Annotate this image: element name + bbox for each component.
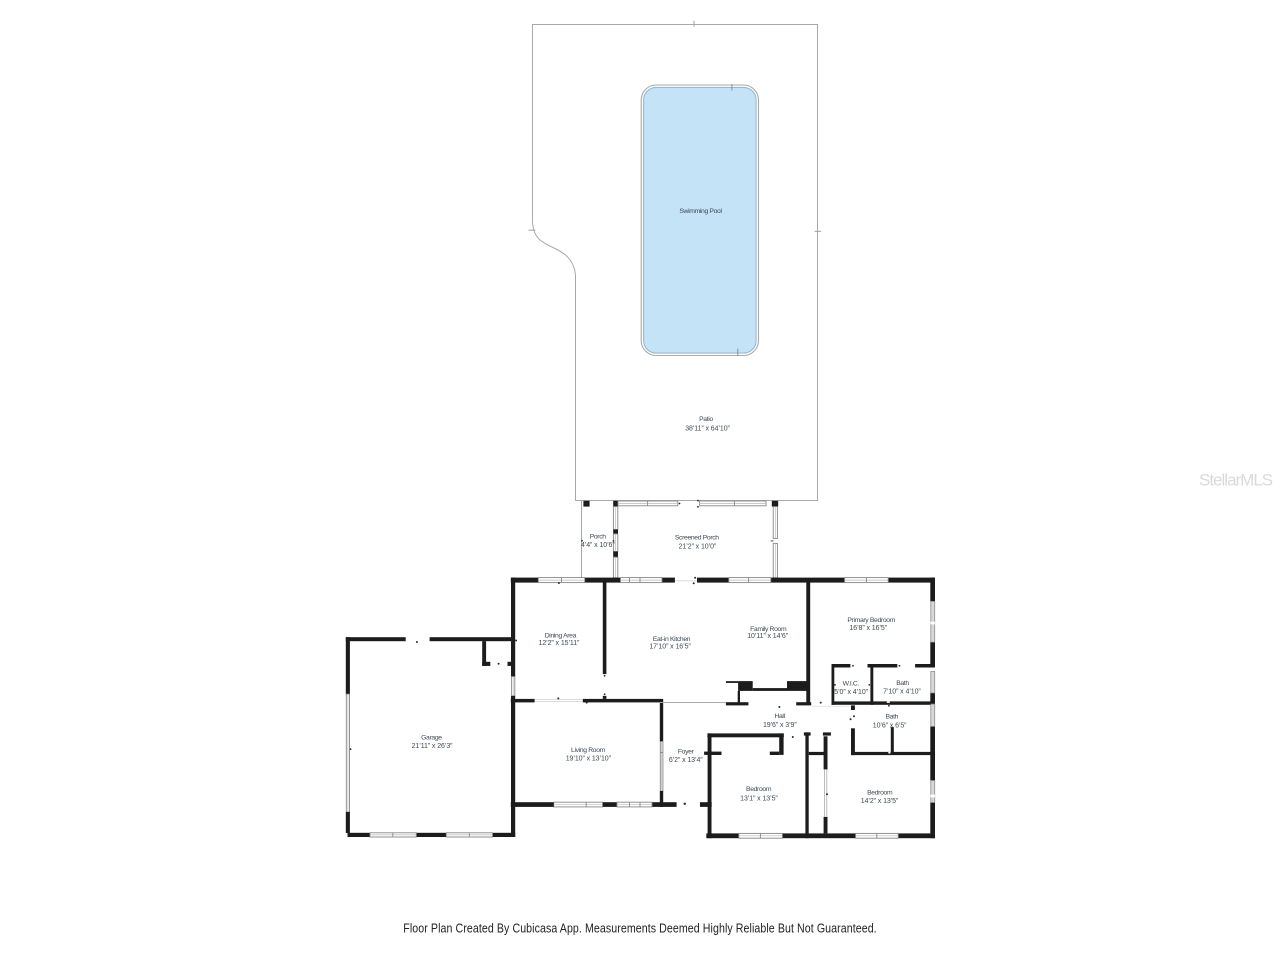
svg-text:16’8” x 16’5”: 16’8” x 16’5” xyxy=(849,625,887,632)
svg-text:4’4” x 10’6”: 4’4” x 10’6” xyxy=(581,542,615,549)
svg-text:Dining Area: Dining Area xyxy=(545,632,577,639)
svg-text:Eat-in Kitchen: Eat-in Kitchen xyxy=(653,636,691,643)
svg-text:19’6” x 3’9”: 19’6” x 3’9” xyxy=(763,722,797,729)
svg-text:10’6” x 6’5”: 10’6” x 6’5” xyxy=(873,722,907,729)
svg-text:Floor Plan Created By Cubicasa: Floor Plan Created By Cubicasa App. Meas… xyxy=(403,920,876,935)
svg-text:17’10” x 16’5”: 17’10” x 16’5” xyxy=(649,644,691,651)
svg-text:6’2” x 13’4”: 6’2” x 13’4” xyxy=(669,757,703,764)
svg-text:W.I.C.: W.I.C. xyxy=(843,681,860,688)
svg-text:7’10” x 4’10”: 7’10” x 4’10” xyxy=(883,689,921,696)
svg-text:14’2” x 13’5”: 14’2” x 13’5” xyxy=(861,798,899,805)
svg-text:Living Room: Living Room xyxy=(571,747,606,754)
svg-text:19’10” x 13’10”: 19’10” x 13’10” xyxy=(566,755,612,762)
svg-text:38’11” x 64’10”: 38’11” x 64’10” xyxy=(685,426,730,433)
svg-text:Bedroom: Bedroom xyxy=(867,789,893,796)
svg-text:Family Room: Family Room xyxy=(750,626,787,633)
svg-text:5’0” x 4’10”: 5’0” x 4’10” xyxy=(834,689,868,696)
svg-text:Screened Porch: Screened Porch xyxy=(675,535,719,542)
svg-text:Garage: Garage xyxy=(421,735,442,742)
svg-text:Patio: Patio xyxy=(699,416,713,423)
svg-text:StellarMLS: StellarMLS xyxy=(1199,471,1273,490)
svg-text:Hall: Hall xyxy=(774,713,785,720)
svg-text:Porch: Porch xyxy=(590,533,607,540)
svg-text:Primary Bedroom: Primary Bedroom xyxy=(847,617,895,624)
svg-text:12’2” x 15’11”: 12’2” x 15’11” xyxy=(539,640,581,647)
svg-text:Bedroom: Bedroom xyxy=(746,786,772,793)
svg-text:21’11” x 26’3”: 21’11” x 26’3” xyxy=(412,743,454,750)
svg-text:21’2” x 10’0”: 21’2” x 10’0” xyxy=(679,543,717,550)
svg-text:Swimming Pool: Swimming Pool xyxy=(679,208,722,215)
svg-text:Foyer: Foyer xyxy=(678,748,695,755)
svg-text:Bath: Bath xyxy=(896,680,909,687)
svg-text:10’11” x 14’6”: 10’11” x 14’6” xyxy=(747,633,789,640)
svg-text:Bath: Bath xyxy=(886,714,899,721)
svg-text:13’1” x 13’5”: 13’1” x 13’5” xyxy=(740,795,778,802)
